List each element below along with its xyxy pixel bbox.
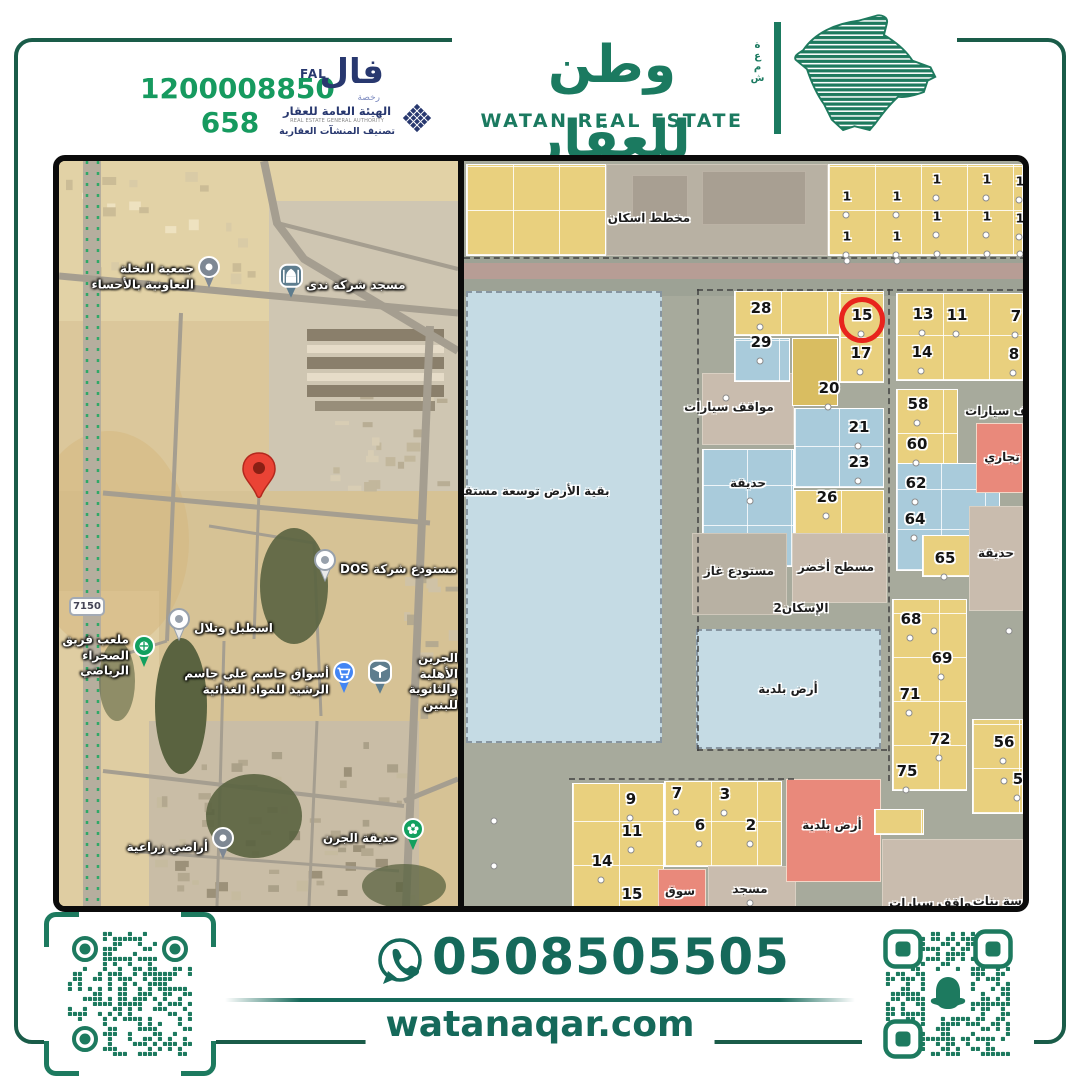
plot-number: 7 — [1011, 307, 1021, 325]
area-label: مسجد — [732, 882, 767, 896]
plot-number: 17 — [851, 344, 872, 362]
place-pin-icon — [196, 255, 222, 293]
area-label: سوق — [665, 884, 695, 898]
property-location-pin — [241, 452, 277, 502]
qr-corner-bracket — [44, 912, 79, 947]
boundary-dashed-line — [888, 289, 890, 781]
parcel-dot — [825, 404, 832, 411]
plot-number: 14 — [592, 852, 613, 870]
authority-classification: تصنيف المنشآت العقارية — [279, 126, 395, 137]
plot-number: 1 — [893, 229, 902, 244]
brand-name-english: WATAN REAL ESTATE — [468, 110, 756, 132]
plot-number: 1 — [983, 209, 992, 224]
plot-number: 6 — [695, 816, 705, 834]
parcel-dot — [906, 710, 913, 717]
poi-label: أراضي زراعية — [127, 840, 208, 856]
plot-number: 21 — [849, 418, 870, 436]
parcel-dot — [627, 815, 634, 822]
boundary-dashed-line — [697, 749, 887, 751]
satellite-map: جمعية النخلة التعاونية بالأحساءمسجد شركة… — [59, 161, 458, 906]
plot-number: 29 — [751, 333, 772, 351]
poi-label: حديقة الجرن — [323, 831, 398, 847]
area-label: مستودع غاز — [704, 564, 774, 578]
place-pin-icon — [312, 548, 338, 586]
parcel-block — [466, 291, 662, 743]
plot-number: 69 — [932, 649, 953, 667]
route-7150-badge: 7150 — [69, 597, 105, 616]
plot-number: 9 — [626, 790, 636, 808]
parcel-block — [464, 263, 1023, 279]
poi-label: ملعب فريق الصحراء الرياضي — [59, 633, 129, 680]
parcel-block — [794, 490, 884, 536]
plot-number: 71 — [900, 685, 921, 703]
parcel-dot — [894, 258, 901, 265]
parcel-dot — [491, 863, 498, 870]
fal-logo: FAL فال رخصة — [300, 55, 386, 107]
real-estate-authority-logo: الهيئة العامة للعقار REAL ESTATE GENERAL… — [258, 102, 433, 138]
plot-number: 1 — [1016, 211, 1023, 226]
area-label: حديقة — [730, 476, 766, 490]
area-label: مدرسة بنات — [973, 894, 1023, 906]
website-url: watanaqar.com — [366, 1004, 715, 1045]
authority-name-en: REAL ESTATE GENERAL AUTHORITY — [279, 118, 395, 124]
parcel-dot — [696, 841, 703, 848]
parcel-block — [702, 171, 806, 225]
parcel-dot — [721, 810, 728, 817]
plot-number: 14 — [912, 343, 933, 361]
parcel-dot — [1017, 251, 1024, 258]
plot-number: 1 — [893, 189, 902, 204]
parcel-dot — [919, 330, 926, 337]
parcel-dot — [1016, 234, 1023, 241]
parcel-dot — [844, 258, 851, 265]
parcel-dot — [918, 368, 925, 375]
whatsapp-icon — [372, 934, 428, 994]
plot-number: 5 — [1013, 770, 1023, 788]
parcel-dot — [1001, 778, 1008, 785]
parcel-dot — [855, 478, 862, 485]
school-icon — [367, 659, 393, 699]
authority-name-ar: الهيئة العامة للعقار — [279, 104, 395, 118]
plot-number: 11 — [947, 306, 968, 324]
parcel-dot — [931, 628, 938, 635]
area-label: أرض بلدية — [758, 682, 817, 696]
saudi-arabia-map-logo — [788, 12, 940, 138]
stadium-icon — [131, 634, 157, 672]
parcel-dot — [1006, 628, 1013, 635]
plot-number: 62 — [906, 474, 927, 492]
website-qr-code — [44, 912, 216, 1076]
authority-diamond-icon — [401, 102, 433, 138]
plot-number: 1 — [983, 172, 992, 187]
parcel-dot — [757, 324, 764, 331]
parcel-dot — [941, 574, 948, 581]
fal-logo-ar: فال — [319, 55, 384, 89]
parcel-dot — [912, 499, 919, 506]
plot-number: 23 — [849, 453, 870, 471]
parcel-dot — [843, 212, 850, 219]
parcel-dot — [893, 212, 900, 219]
fal-license-number: 1200008850 — [140, 72, 305, 105]
highlighted-plot-circle — [839, 297, 885, 343]
poi-label: اسطبل وتلال — [194, 621, 273, 637]
parcel-dot — [1016, 197, 1023, 204]
qr-corner-bracket — [181, 1041, 216, 1076]
parcel-block — [572, 783, 664, 906]
plot-number: 1 — [843, 189, 852, 204]
parcel-block — [794, 408, 884, 488]
plot-number: 13 — [913, 305, 934, 323]
parcel-dot — [747, 900, 754, 907]
parcel-dot — [933, 232, 940, 239]
parcel-dot — [757, 358, 764, 365]
parcel-dot — [598, 877, 605, 884]
brand-divider-bar — [774, 22, 781, 134]
area-label: مخطط اسكان — [608, 211, 690, 225]
parcel-dot — [911, 535, 918, 542]
area-label: مواقف سيارات — [684, 400, 774, 414]
area-label: تجاري — [984, 450, 1020, 464]
parcel-block — [828, 164, 1023, 256]
plot-number: 58 — [908, 395, 929, 413]
plot-number: 7 — [672, 784, 682, 802]
shopping-cart-icon — [331, 660, 357, 698]
poi-label: جمعية النخلة التعاونية بالأحساء — [91, 261, 194, 292]
area-label: بقية الأرض توسعة مستقبلية — [464, 484, 609, 498]
parcel-dot — [857, 369, 864, 376]
boundary-dashed-line — [569, 778, 794, 780]
parcel-dot — [936, 755, 943, 762]
plot-number: 2 — [746, 816, 756, 834]
place-pin-icon — [166, 607, 192, 645]
park-icon — [400, 817, 426, 855]
plot-number: 11 — [622, 822, 643, 840]
plot-number: 15 — [622, 885, 643, 903]
parcel-dot — [938, 674, 945, 681]
parcel-dot — [628, 847, 635, 854]
parcel-dot — [1010, 370, 1017, 377]
parcel-map: 1111111111282915172021232613117148586062… — [464, 161, 1023, 906]
phone-number: 0508505505 — [432, 928, 790, 986]
parcel-dot — [983, 232, 990, 239]
plot-number: 68 — [901, 610, 922, 628]
area-label: مواقف سيارات — [889, 896, 979, 906]
brand-vertical-word: شمعة — [752, 40, 763, 140]
parcel-block — [874, 809, 924, 835]
plot-number: 1 — [843, 229, 852, 244]
parcel-dot — [747, 841, 754, 848]
parcel-dot — [747, 498, 754, 505]
plot-number: 64 — [905, 510, 926, 528]
poi-label: الجرين الأهلية والثانوية للبنين — [395, 651, 458, 713]
poi-label: مستودع شركة DOS — [340, 562, 457, 578]
plot-number: 8 — [1009, 345, 1019, 363]
plot-number: 3 — [720, 785, 730, 803]
qr-corner-bracket — [44, 1041, 79, 1076]
place-pin-icon — [210, 826, 236, 864]
parcel-dot — [843, 252, 850, 259]
parcel-dot — [1012, 332, 1019, 339]
plot-number: 56 — [994, 733, 1015, 751]
parcel-dot — [903, 787, 910, 794]
plot-number: 1 — [933, 209, 942, 224]
parcel-dot — [855, 443, 862, 450]
plot-number: 1 — [1016, 174, 1023, 189]
plot-number: 26 — [817, 488, 838, 506]
qr-corner-bracket — [181, 912, 216, 947]
area-label: حديقة — [978, 546, 1014, 560]
parcel-dot — [1014, 795, 1021, 802]
maps-panel: جمعية النخلة التعاونية بالأحساءمسجد شركة… — [53, 155, 1029, 912]
footer-divider-line — [225, 998, 855, 1002]
mosque-icon — [278, 263, 304, 303]
parcel-dot — [491, 818, 498, 825]
parcel-dot — [934, 251, 941, 258]
plot-number: 1 — [933, 172, 942, 187]
area-label: الإسكان2 — [774, 601, 829, 615]
parcel-dot — [893, 252, 900, 259]
parcel-dot — [983, 195, 990, 202]
parcel-dot — [823, 513, 830, 520]
parcel-dot — [914, 420, 921, 427]
parcel-dot — [1000, 758, 1007, 765]
plot-number: 65 — [935, 549, 956, 567]
area-label: مواقف سيارات — [965, 404, 1023, 418]
plot-number: 20 — [819, 379, 840, 397]
parcel-dot — [933, 195, 940, 202]
poi-label: أسواق جاسم علي جاسم الرشيد للمواد الغذائ… — [184, 666, 329, 697]
plot-number: 60 — [907, 435, 928, 453]
boundary-dashed-line — [464, 257, 1023, 259]
snapchat-qr-code — [862, 912, 1034, 1076]
parcel-dot — [673, 809, 680, 816]
parcel-dot — [984, 251, 991, 258]
parcel-dot — [953, 331, 960, 338]
boundary-dashed-line — [697, 289, 699, 751]
area-label: مسطح أخضر — [798, 560, 874, 574]
area-label: أرض بلدية — [802, 818, 861, 832]
parcel-dot — [907, 635, 914, 642]
parcel-dot — [913, 460, 920, 467]
plot-number: 28 — [751, 299, 772, 317]
parcel-block — [466, 164, 606, 256]
poi-label: مسجد شركة ندى — [306, 278, 406, 294]
plot-number: 72 — [930, 730, 951, 748]
plot-number: 75 — [897, 762, 918, 780]
boundary-dashed-line — [697, 289, 1023, 291]
